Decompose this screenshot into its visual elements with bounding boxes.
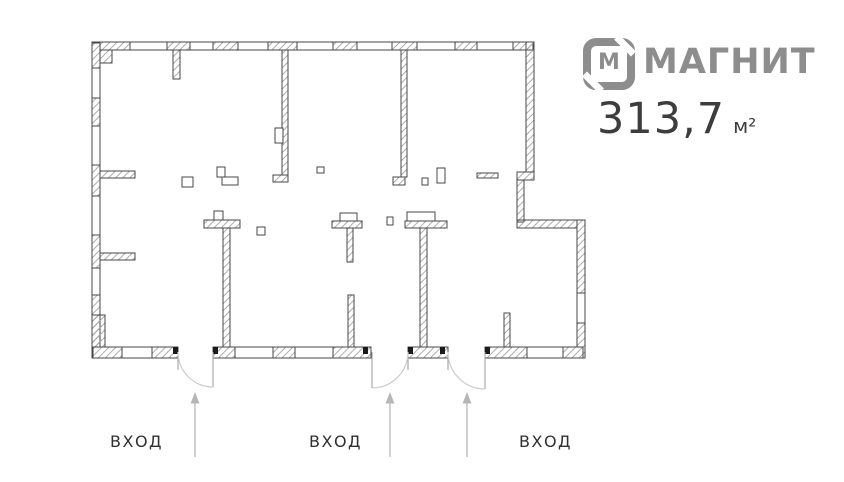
entrance-label-1: ВХОД [110,432,163,451]
entrance-arrow-icon [386,392,395,457]
entrance-label-3: ВХОД [519,432,572,451]
area-label: 313,7 м² [597,94,756,144]
top-wall [92,42,533,79]
right-wall [517,42,585,358]
magnit-logo: М МАГНИТ [583,38,816,90]
bottom-wall [93,347,583,358]
entrance-label-2: ВХОД [309,432,362,451]
entrance-arrow-icon [191,392,200,457]
left-wall [92,42,135,358]
area-unit: м² [733,114,756,138]
floor-plan-page: М МАГНИТ 313,7 м² ВХОД ВХОД ВХОД [0,0,844,482]
magnit-logo-icon: М [583,38,635,90]
interior-walls [204,50,510,347]
area-value: 313,7 [597,94,725,144]
entrance-arrow-icon [463,392,472,457]
logo-wordmark: МАГНИТ [643,42,816,82]
logo-monogram: М [598,52,620,74]
